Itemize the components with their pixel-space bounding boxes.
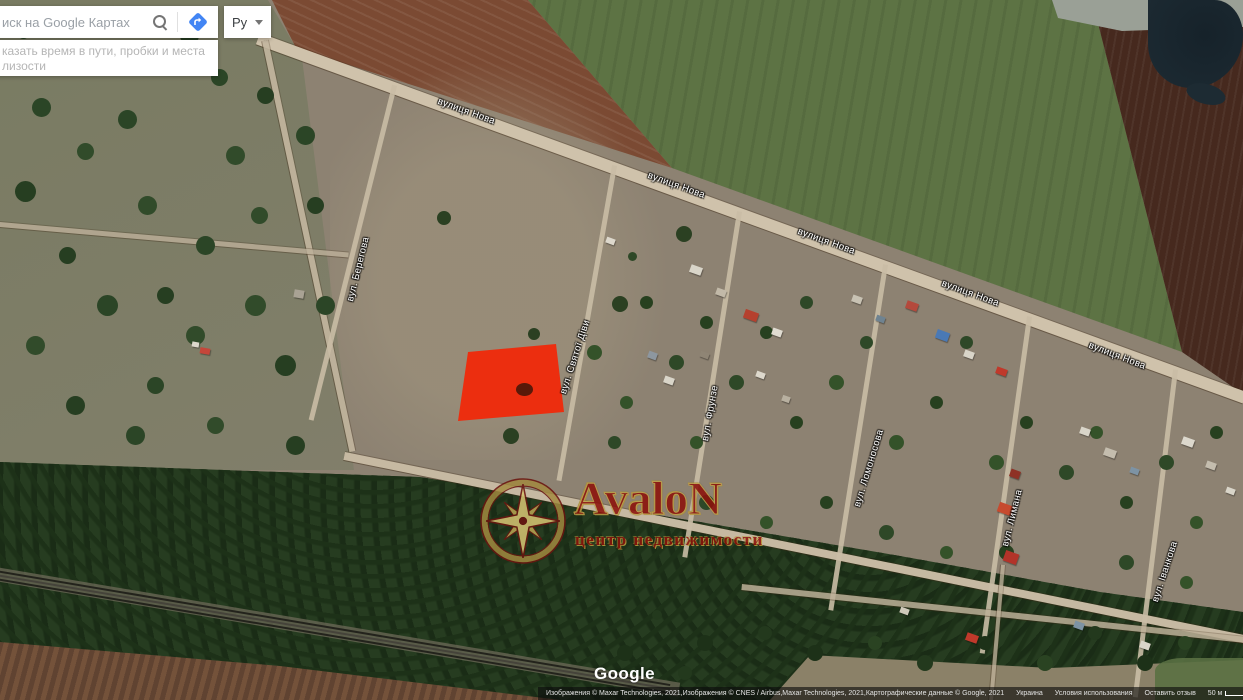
language-label: Ру (232, 15, 247, 30)
search-input[interactable] (0, 15, 151, 30)
parcel-shadow-blob (516, 383, 533, 396)
scale-bar (1225, 691, 1243, 696)
house (851, 295, 863, 305)
house (899, 607, 910, 616)
house (1079, 427, 1091, 437)
house (293, 289, 304, 299)
card-divider (177, 12, 178, 32)
hint-line-2: лизости (2, 59, 212, 74)
search-icon[interactable] (151, 13, 169, 31)
house (905, 300, 919, 312)
attribution-text: Изображения © Maxar Technologies, 2021,И… (546, 690, 1004, 697)
house (1181, 436, 1195, 448)
house (995, 366, 1008, 376)
house (755, 371, 766, 380)
house (781, 395, 791, 403)
house (689, 264, 703, 276)
house (200, 347, 211, 355)
house (1103, 447, 1117, 459)
directions-icon[interactable] (186, 10, 210, 34)
tree-cluster (628, 252, 637, 261)
satellite-map[interactable]: вулиця Нова вулиця Нова вулиця Нова вули… (0, 0, 1243, 700)
house (1009, 469, 1021, 480)
house (699, 351, 710, 360)
scale-label: 50 м (1208, 690, 1223, 697)
street-road (1133, 369, 1178, 697)
house (771, 328, 783, 338)
link-feedback[interactable]: Оставить отзыв (1145, 690, 1196, 697)
agency-watermark: AvaloN центр недвижимости (480, 478, 770, 574)
google-maps-screen: вулиця Нова вулиця Нова вулиця Нова вули… (0, 0, 1243, 700)
tree-cluster (528, 328, 540, 340)
chevron-down-icon (255, 20, 263, 25)
house (192, 341, 200, 347)
link-country[interactable]: Украина (1016, 690, 1043, 697)
highlighted-parcel[interactable] (455, 340, 567, 424)
watermark-subtitle: центр недвижимости (575, 530, 764, 550)
compass-rose-icon (480, 478, 566, 564)
hint-line-1: казать время в пути, пробки и места (2, 44, 212, 59)
search-card (0, 6, 218, 38)
street-label: вул. Фрунзе (700, 384, 721, 442)
travel-hint-card: казать время в пути, пробки и места лизо… (0, 40, 218, 76)
house (965, 632, 979, 644)
house (1225, 487, 1236, 496)
attribution-bar: Изображения © Maxar Technologies, 2021,И… (538, 687, 1243, 700)
pond (1148, 0, 1243, 88)
link-terms[interactable]: Условия использования (1055, 690, 1133, 697)
house (1205, 461, 1217, 471)
watermark-title: AvaloN (574, 472, 722, 526)
pond-small (1184, 79, 1228, 109)
google-logo[interactable]: Google (594, 664, 655, 684)
left-path (0, 222, 349, 257)
lower-road (343, 452, 1243, 645)
house (1129, 467, 1140, 476)
house (963, 350, 975, 360)
house (1003, 550, 1020, 565)
street-road (980, 316, 1032, 653)
tree-cluster (652, 610, 662, 620)
language-button[interactable]: Ру (224, 6, 271, 38)
house (743, 309, 759, 322)
house (935, 329, 950, 342)
scale-control[interactable]: 50 м (1208, 690, 1243, 697)
